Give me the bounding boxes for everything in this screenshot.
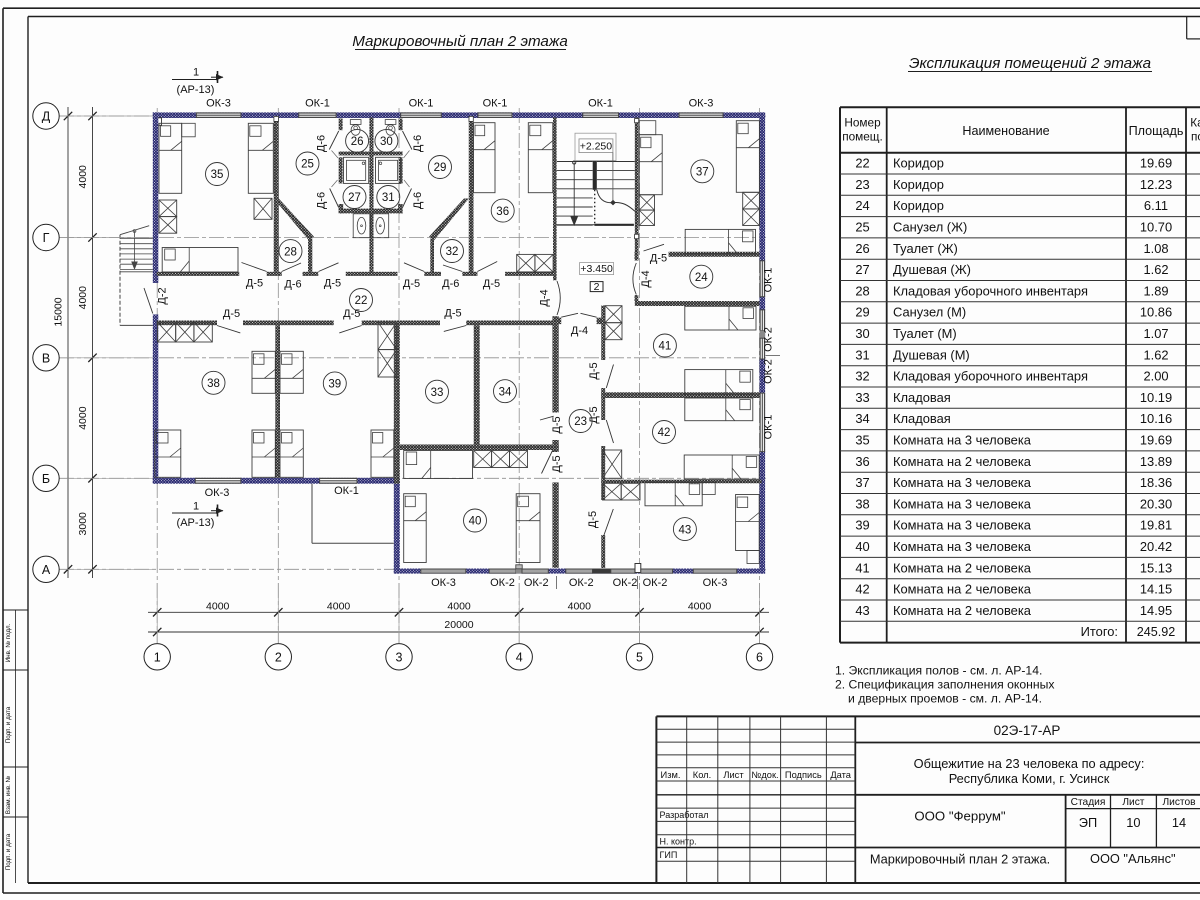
svg-text:Площадь: Площадь xyxy=(1129,124,1184,138)
svg-text:6: 6 xyxy=(756,650,763,664)
svg-text:+2.250: +2.250 xyxy=(580,141,613,153)
svg-text:1.07: 1.07 xyxy=(1143,326,1168,341)
svg-text:41: 41 xyxy=(659,341,672,353)
svg-text:Экспликация помещений 2 этажа: Экспликация помещений 2 этажа xyxy=(909,55,1151,72)
svg-text:Маркировочный план 2 этажа: Маркировочный план 2 этажа xyxy=(352,33,568,50)
svg-text:А: А xyxy=(42,563,51,577)
svg-text:14.15: 14.15 xyxy=(1140,582,1172,597)
svg-text:Санузел (Ж): Санузел (Ж) xyxy=(893,220,967,235)
svg-text:31: 31 xyxy=(855,347,869,362)
svg-text:10.86: 10.86 xyxy=(1140,305,1172,320)
svg-text:Коридор: Коридор xyxy=(893,177,944,192)
svg-text:ОК-1: ОК-1 xyxy=(334,485,359,497)
svg-text:Инв. № подл.: Инв. № подл. xyxy=(5,623,12,662)
svg-text:Д-4: Д-4 xyxy=(539,289,551,306)
svg-text:27: 27 xyxy=(348,192,361,204)
svg-text:ОК-3: ОК-3 xyxy=(206,98,231,110)
svg-text:10.19: 10.19 xyxy=(1140,390,1172,405)
svg-text:ОК-1: ОК-1 xyxy=(409,98,434,110)
svg-text:Кладовая уборочного инвентаря: Кладовая уборочного инвентаря xyxy=(893,283,1088,298)
svg-text:Подп. и дата: Подп. и дата xyxy=(5,706,12,743)
svg-text:28: 28 xyxy=(284,246,297,258)
svg-text:4000: 4000 xyxy=(77,286,89,310)
svg-text:Д-4: Д-4 xyxy=(571,325,588,337)
svg-text:28: 28 xyxy=(855,283,869,298)
svg-text:ОК-3: ОК-3 xyxy=(431,577,456,589)
svg-text:36: 36 xyxy=(496,206,509,218)
svg-text:В: В xyxy=(42,351,50,365)
svg-text:Д-5: Д-5 xyxy=(588,362,600,379)
svg-text:Д-5: Д-5 xyxy=(483,278,500,290)
svg-text:37: 37 xyxy=(855,475,869,490)
svg-text:ЭП: ЭП xyxy=(1079,815,1097,830)
svg-text:Разработал: Разработал xyxy=(660,810,709,820)
svg-text:по: по xyxy=(1191,130,1200,144)
svg-text:2: 2 xyxy=(275,650,282,664)
svg-text:Комната на 2 человека: Комната на 2 человека xyxy=(893,560,1032,575)
svg-text:Санузел (М): Санузел (М) xyxy=(893,305,966,320)
svg-text:30: 30 xyxy=(855,326,869,341)
svg-text:Коридор: Коридор xyxy=(893,198,944,213)
svg-text:20000: 20000 xyxy=(444,619,473,631)
svg-text:1.62: 1.62 xyxy=(1143,347,1168,362)
svg-text:32: 32 xyxy=(446,246,459,258)
svg-text:26: 26 xyxy=(855,241,869,256)
svg-text:Коридор: Коридор xyxy=(893,156,944,171)
svg-text:10.70: 10.70 xyxy=(1140,220,1172,235)
svg-text:ОК-2: ОК-2 xyxy=(524,577,549,589)
svg-text:Комната на 3 человека: Комната на 3 человека xyxy=(893,496,1032,511)
svg-text:Д-5: Д-5 xyxy=(588,406,600,423)
svg-text:34: 34 xyxy=(855,411,869,426)
svg-text:1: 1 xyxy=(193,501,199,513)
svg-text:1.89: 1.89 xyxy=(1143,283,1168,298)
svg-text:Д-6: Д-6 xyxy=(284,279,301,291)
svg-text:Душевая (М): Душевая (М) xyxy=(893,347,970,362)
svg-text:33: 33 xyxy=(431,387,444,399)
svg-text:(АР-13): (АР-13) xyxy=(177,517,215,529)
svg-text:42: 42 xyxy=(658,427,671,439)
svg-text:42: 42 xyxy=(855,582,869,597)
svg-text:32: 32 xyxy=(855,369,869,384)
svg-text:5: 5 xyxy=(636,650,643,664)
svg-text:19.69: 19.69 xyxy=(1140,433,1172,448)
svg-text:4000: 4000 xyxy=(688,601,712,613)
svg-text:20.30: 20.30 xyxy=(1140,496,1172,511)
svg-text:ООО "Феррум": ООО "Феррум" xyxy=(914,809,1006,824)
svg-text:30: 30 xyxy=(380,136,393,148)
svg-text:20.42: 20.42 xyxy=(1140,539,1172,554)
svg-text:36: 36 xyxy=(855,454,869,469)
svg-text:23: 23 xyxy=(855,177,869,192)
svg-text:Д-5: Д-5 xyxy=(246,278,263,290)
svg-text:ОК-1: ОК-1 xyxy=(763,268,775,293)
svg-text:ОК-3: ОК-3 xyxy=(703,577,728,589)
svg-text:ОК-2: ОК-2 xyxy=(763,327,775,352)
svg-text:38: 38 xyxy=(855,496,869,511)
svg-text:Д-6: Д-6 xyxy=(442,278,459,290)
svg-text:40: 40 xyxy=(469,516,482,528)
svg-text:39: 39 xyxy=(328,379,341,391)
svg-text:15000: 15000 xyxy=(53,297,65,326)
svg-text:19.81: 19.81 xyxy=(1140,518,1172,533)
svg-text:ОК-3: ОК-3 xyxy=(205,487,230,499)
svg-text:Д-5: Д-5 xyxy=(551,455,563,472)
svg-text:Ка: Ка xyxy=(1190,116,1200,130)
svg-text:(АР-13): (АР-13) xyxy=(177,84,215,96)
svg-text:Листов: Листов xyxy=(1162,797,1195,808)
svg-text:Д-5: Д-5 xyxy=(551,416,563,433)
svg-text:14.95: 14.95 xyxy=(1140,603,1172,618)
svg-text:4000: 4000 xyxy=(77,406,89,430)
svg-text:40: 40 xyxy=(855,539,869,554)
svg-text:22: 22 xyxy=(855,156,869,171)
svg-text:Комната на 2 человека: Комната на 2 человека xyxy=(893,454,1032,469)
svg-text:02Э-17-АР: 02Э-17-АР xyxy=(994,723,1061,738)
svg-text:10: 10 xyxy=(1126,815,1140,830)
svg-text:Д-2: Д-2 xyxy=(157,287,169,304)
svg-text:26: 26 xyxy=(351,136,364,148)
svg-text:помещ.: помещ. xyxy=(842,130,883,144)
svg-text:35: 35 xyxy=(855,433,869,448)
svg-text:Итого:: Итого: xyxy=(1081,624,1118,639)
svg-text:Комната на 3 человека: Комната на 3 человека xyxy=(893,475,1032,490)
svg-text:Д-5: Д-5 xyxy=(587,511,599,528)
svg-text:ОК-2: ОК-2 xyxy=(613,577,638,589)
svg-text:Лист: Лист xyxy=(1122,797,1144,808)
svg-text:39: 39 xyxy=(855,518,869,533)
svg-text:ОК-1: ОК-1 xyxy=(483,98,508,110)
svg-text:Д-5: Д-5 xyxy=(324,278,341,290)
svg-text:Общежитие на 23 человека по ад: Общежитие на 23 человека по адресу: xyxy=(914,756,1145,771)
svg-text:Туалет (Ж): Туалет (Ж) xyxy=(893,241,958,256)
svg-text:1.62: 1.62 xyxy=(1143,262,1168,277)
svg-text:10.16: 10.16 xyxy=(1140,411,1172,426)
svg-text:Д-5: Д-5 xyxy=(650,253,667,265)
svg-text:25: 25 xyxy=(301,159,314,171)
svg-text:Д-5: Д-5 xyxy=(444,308,461,320)
svg-text:Изм.: Изм. xyxy=(661,770,681,780)
svg-text:Взам. инв. №: Взам. инв. № xyxy=(5,775,12,814)
svg-text:Кол.: Кол. xyxy=(693,770,711,780)
svg-text:ОК-1: ОК-1 xyxy=(305,98,330,110)
svg-text:29: 29 xyxy=(434,162,447,174)
svg-text:4: 4 xyxy=(516,650,523,664)
svg-text:4000: 4000 xyxy=(447,601,471,613)
svg-text:Дата: Дата xyxy=(830,770,851,780)
svg-text:2. Спецификация заполнения око: 2. Спецификация заполнения оконных xyxy=(835,678,1054,692)
svg-text:ООО "Альянс": ООО "Альянс" xyxy=(1090,851,1176,866)
svg-text:Н. контр.: Н. контр. xyxy=(660,837,697,847)
svg-text:Д-6: Д-6 xyxy=(412,135,424,152)
svg-text:ГИП: ГИП xyxy=(660,850,678,860)
svg-text:245.92: 245.92 xyxy=(1137,625,1176,639)
svg-text:№док.: №док. xyxy=(751,770,778,780)
svg-text:27: 27 xyxy=(855,262,869,277)
svg-text:2.00: 2.00 xyxy=(1143,369,1168,384)
svg-text:Подпись: Подпись xyxy=(785,770,822,780)
svg-text:Душевая (Ж): Душевая (Ж) xyxy=(893,262,971,277)
svg-text:Комната на 3 человека: Комната на 3 человека xyxy=(893,518,1032,533)
svg-text:4000: 4000 xyxy=(327,601,351,613)
svg-text:ОК-2: ОК-2 xyxy=(490,577,515,589)
svg-text:19.69: 19.69 xyxy=(1140,156,1172,171)
svg-text:Наименование: Наименование xyxy=(962,124,1049,138)
svg-text:6.11: 6.11 xyxy=(1144,198,1168,213)
svg-text:37: 37 xyxy=(696,167,709,179)
svg-text:23: 23 xyxy=(574,416,587,428)
svg-text:43: 43 xyxy=(855,603,869,618)
svg-text:Б: Б xyxy=(42,472,50,486)
svg-text:1: 1 xyxy=(154,650,161,664)
svg-text:Кладовая уборочного инвентаря: Кладовая уборочного инвентаря xyxy=(893,369,1088,384)
svg-text:Кладовая: Кладовая xyxy=(893,390,951,405)
svg-text:2: 2 xyxy=(594,281,600,293)
svg-text:Комната на 2 человека: Комната на 2 человека xyxy=(893,582,1032,597)
svg-text:4000: 4000 xyxy=(206,601,230,613)
svg-text:ОК-2: ОК-2 xyxy=(763,359,775,384)
svg-text:+3.450: +3.450 xyxy=(580,263,613,275)
svg-text:38: 38 xyxy=(207,378,220,390)
svg-text:3000: 3000 xyxy=(77,512,89,536)
svg-text:1.08: 1.08 xyxy=(1143,241,1168,256)
svg-text:1: 1 xyxy=(193,67,199,79)
svg-text:Комната на 3 человека: Комната на 3 человека xyxy=(893,539,1032,554)
svg-text:43: 43 xyxy=(679,524,692,536)
svg-text:18.36: 18.36 xyxy=(1140,475,1172,490)
svg-text:Стадия: Стадия xyxy=(1071,797,1106,808)
svg-text:1. Экспликация полов - см. л.: 1. Экспликация полов - см. л. АР-14. xyxy=(835,664,1042,678)
svg-text:ОК-1: ОК-1 xyxy=(588,98,613,110)
svg-text:Д-6: Д-6 xyxy=(316,135,328,152)
svg-text:4000: 4000 xyxy=(77,165,89,189)
svg-text:Г: Г xyxy=(43,231,50,245)
svg-text:4000: 4000 xyxy=(568,601,592,613)
svg-text:Комната на 2 человека: Комната на 2 человека xyxy=(893,603,1032,618)
svg-text:31: 31 xyxy=(382,192,395,204)
svg-text:ОК-1: ОК-1 xyxy=(763,415,775,440)
svg-text:Лист: Лист xyxy=(723,770,744,780)
svg-text:Маркировочный план 2 этажа.: Маркировочный план 2 этажа. xyxy=(870,852,1050,867)
svg-text:Д-5: Д-5 xyxy=(403,278,420,290)
svg-text:24: 24 xyxy=(855,198,869,213)
svg-text:Республика Коми, г. Усинск: Республика Коми, г. Усинск xyxy=(949,771,1110,786)
svg-text:24: 24 xyxy=(695,272,708,284)
svg-text:33: 33 xyxy=(855,390,869,405)
svg-text:ОК-3: ОК-3 xyxy=(689,98,714,110)
svg-text:Подп. и дата: Подп. и дата xyxy=(5,833,12,870)
svg-text:25: 25 xyxy=(855,220,869,235)
svg-text:22: 22 xyxy=(355,295,368,307)
svg-text:Номер: Номер xyxy=(844,116,881,130)
svg-text:Д-5: Д-5 xyxy=(223,308,240,320)
svg-text:Туалет (М): Туалет (М) xyxy=(893,326,957,341)
svg-text:15.13: 15.13 xyxy=(1140,560,1172,575)
svg-text:13.89: 13.89 xyxy=(1140,454,1172,469)
svg-text:Кладовая: Кладовая xyxy=(893,411,951,426)
svg-text:29: 29 xyxy=(855,305,869,320)
svg-text:Д-6: Д-6 xyxy=(316,192,328,209)
svg-text:41: 41 xyxy=(855,560,869,575)
svg-text:34: 34 xyxy=(499,386,512,398)
svg-text:Д: Д xyxy=(42,110,51,124)
svg-text:Д-6: Д-6 xyxy=(412,192,424,209)
svg-text:и дверных проемов - см. л. АР-: и дверных проемов - см. л. АР-14. xyxy=(848,692,1042,706)
svg-text:Д-4: Д-4 xyxy=(640,270,652,287)
svg-text:35: 35 xyxy=(211,169,224,181)
svg-text:ОК-2: ОК-2 xyxy=(643,577,668,589)
svg-text:Д-5: Д-5 xyxy=(343,308,360,320)
svg-text:14: 14 xyxy=(1172,815,1186,830)
svg-text:ОК-2: ОК-2 xyxy=(569,577,594,589)
svg-text:12.23: 12.23 xyxy=(1140,177,1172,192)
svg-text:3: 3 xyxy=(396,650,403,664)
svg-text:Комната на 3 человека: Комната на 3 человека xyxy=(893,433,1032,448)
